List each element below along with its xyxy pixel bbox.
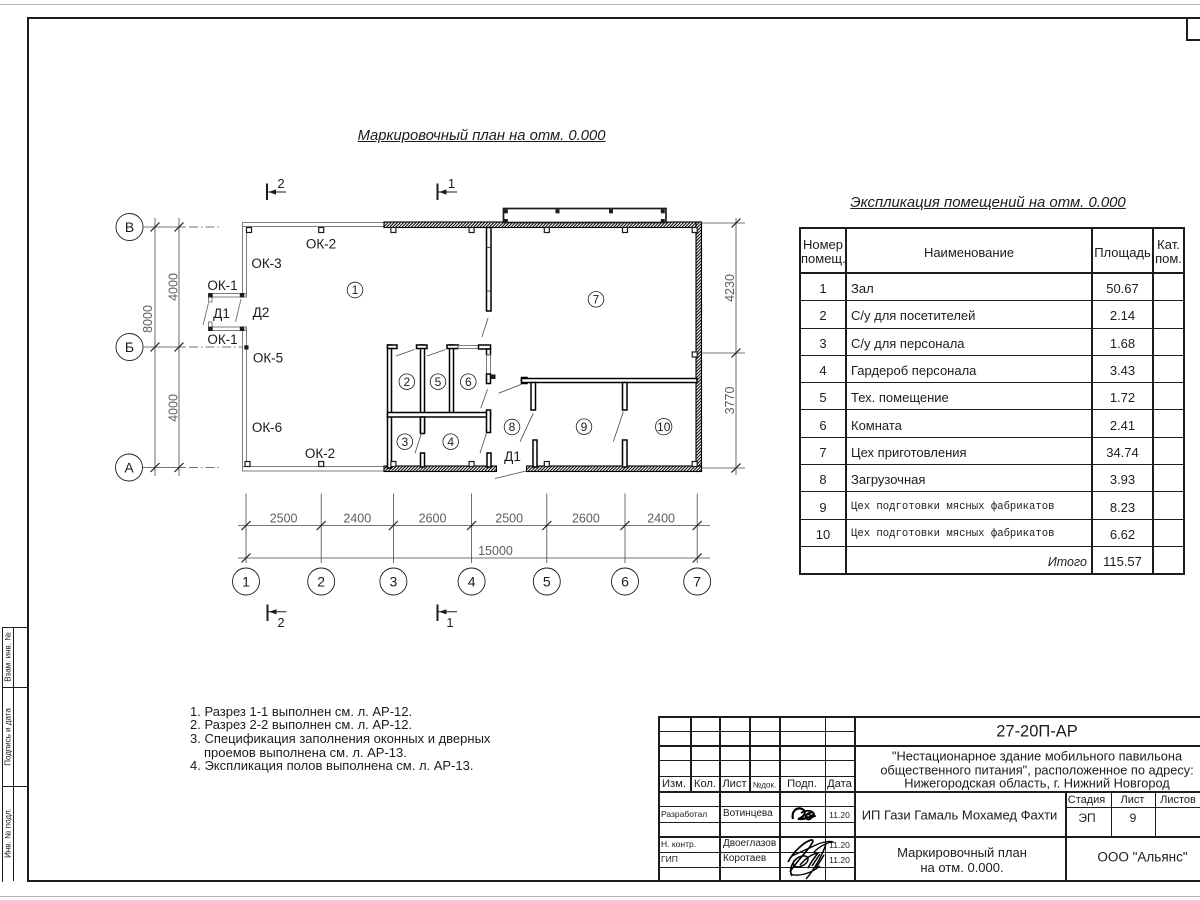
svg-text:1: 1 (448, 176, 455, 191)
svg-text:ОК-2: ОК-2 (306, 237, 336, 252)
svg-text:4000: 4000 (167, 394, 181, 422)
svg-text:ОК-6: ОК-6 (252, 420, 282, 435)
svg-text:7: 7 (593, 293, 600, 307)
svg-text:ОК-2: ОК-2 (305, 446, 335, 461)
svg-text:3770: 3770 (723, 387, 737, 415)
svg-text:2500: 2500 (495, 512, 523, 526)
svg-text:8000: 8000 (141, 305, 155, 333)
svg-text:4230: 4230 (723, 274, 737, 302)
svg-text:А: А (124, 460, 134, 476)
svg-text:В: В (125, 219, 134, 235)
svg-text:6: 6 (465, 375, 472, 389)
svg-text:4000: 4000 (167, 273, 181, 301)
svg-text:5: 5 (543, 574, 551, 590)
svg-text:3: 3 (401, 435, 408, 449)
svg-text:2500: 2500 (270, 512, 298, 526)
svg-text:2600: 2600 (572, 512, 600, 526)
svg-text:10: 10 (657, 420, 671, 434)
svg-text:1: 1 (242, 574, 250, 590)
svg-text:2: 2 (403, 375, 410, 389)
svg-text:2: 2 (277, 615, 284, 630)
svg-text:ОК-1: ОК-1 (207, 332, 237, 347)
svg-text:1: 1 (352, 283, 359, 297)
svg-text:ОК-5: ОК-5 (253, 351, 283, 366)
svg-text:4: 4 (468, 574, 476, 590)
svg-text:8: 8 (509, 420, 516, 434)
svg-text:Б: Б (125, 339, 134, 355)
svg-text:5: 5 (435, 375, 442, 389)
svg-text:4: 4 (447, 435, 454, 449)
svg-text:Д2: Д2 (253, 305, 270, 320)
svg-text:Д1: Д1 (213, 306, 230, 321)
svg-text:15000: 15000 (478, 544, 513, 558)
svg-text:2400: 2400 (343, 512, 371, 526)
svg-text:2600: 2600 (419, 512, 447, 526)
svg-text:2: 2 (317, 574, 325, 590)
svg-text:ОК-1: ОК-1 (207, 278, 237, 293)
svg-text:Д1: Д1 (504, 449, 521, 464)
svg-text:6: 6 (621, 574, 629, 590)
svg-text:ОК-3: ОК-3 (251, 256, 281, 271)
svg-text:9: 9 (581, 420, 588, 434)
svg-text:3: 3 (390, 574, 398, 590)
svg-text:2: 2 (277, 176, 284, 191)
svg-text:7: 7 (693, 574, 701, 590)
svg-text:1: 1 (446, 615, 453, 630)
svg-text:2400: 2400 (647, 512, 675, 526)
